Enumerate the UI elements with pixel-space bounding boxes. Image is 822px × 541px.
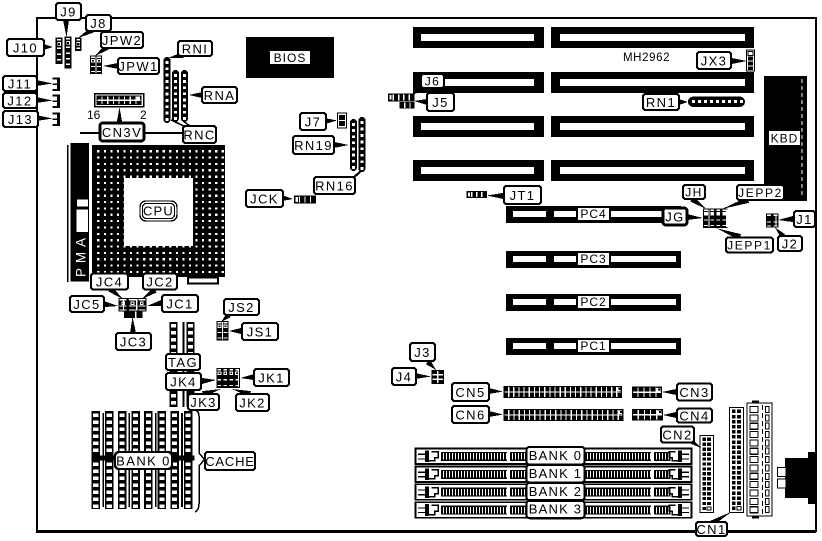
svg-text:J5: J5 xyxy=(432,95,449,110)
svg-text:PC3: PC3 xyxy=(580,252,606,266)
svg-text:M: M xyxy=(74,252,89,263)
svg-text:CN3V: CN3V xyxy=(102,125,142,140)
svg-text:MH2962: MH2962 xyxy=(623,52,670,64)
svg-text:J2: J2 xyxy=(782,237,799,252)
svg-text:JS2: JS2 xyxy=(228,300,255,315)
svg-text:KBD: KBD xyxy=(771,132,799,146)
svg-text:16: 16 xyxy=(87,108,101,122)
svg-text:JC4: JC4 xyxy=(96,275,123,290)
svg-text:JK3: JK3 xyxy=(190,395,217,410)
svg-text:JT1: JT1 xyxy=(510,188,536,203)
svg-text:PC4: PC4 xyxy=(580,207,606,221)
svg-text:JK4: JK4 xyxy=(170,375,197,390)
svg-text:PC2: PC2 xyxy=(580,295,606,309)
svg-text:CN1: CN1 xyxy=(696,522,726,537)
svg-text:J6: J6 xyxy=(425,75,440,89)
svg-text:JX3: JX3 xyxy=(701,54,728,69)
svg-text:PC1: PC1 xyxy=(580,339,606,353)
svg-text:JPW2: JPW2 xyxy=(102,33,142,48)
svg-text:CN5: CN5 xyxy=(455,385,485,400)
svg-text:TAG: TAG xyxy=(168,355,198,370)
svg-text:J9: J9 xyxy=(60,5,77,20)
svg-text:JS1: JS1 xyxy=(247,325,274,340)
svg-text:RN19: RN19 xyxy=(294,138,333,153)
svg-text:CN2: CN2 xyxy=(662,428,692,443)
svg-text:JH: JH xyxy=(685,186,702,200)
svg-text:J10: J10 xyxy=(13,41,38,56)
svg-text:JPW1: JPW1 xyxy=(118,59,158,74)
svg-text:JK1: JK1 xyxy=(258,371,285,386)
svg-text:BANK 0: BANK 0 xyxy=(529,448,582,463)
svg-text:RN1: RN1 xyxy=(646,95,676,110)
svg-text:JC2: JC2 xyxy=(146,275,173,290)
svg-text:A: A xyxy=(74,238,89,247)
svg-text:RNI: RNI xyxy=(182,42,209,57)
svg-text:RNA: RNA xyxy=(204,88,236,103)
svg-text:P: P xyxy=(74,268,89,277)
svg-text:CN3: CN3 xyxy=(679,385,709,400)
svg-text:CPU: CPU xyxy=(143,204,174,219)
svg-text:BANK 3: BANK 3 xyxy=(529,502,582,517)
svg-text:JEPP1: JEPP1 xyxy=(727,239,772,253)
svg-text:BANK 0: BANK 0 xyxy=(116,454,171,469)
svg-text:J4: J4 xyxy=(396,370,413,385)
svg-text:CN4: CN4 xyxy=(679,409,709,424)
svg-text:JC1: JC1 xyxy=(166,297,193,312)
svg-text:J11: J11 xyxy=(8,77,32,92)
svg-text:J13: J13 xyxy=(8,112,33,127)
svg-text:JEPP2: JEPP2 xyxy=(738,186,783,200)
svg-text:JC5: JC5 xyxy=(73,297,100,312)
svg-text:RN16: RN16 xyxy=(315,179,354,194)
svg-text:JC3: JC3 xyxy=(120,335,147,350)
svg-text:CACHE: CACHE xyxy=(205,454,255,469)
svg-text:CN6: CN6 xyxy=(455,408,485,423)
svg-text:RNC: RNC xyxy=(183,128,215,143)
svg-text:J7: J7 xyxy=(305,115,322,130)
svg-text:BANK 2: BANK 2 xyxy=(529,484,582,499)
svg-text:JG: JG xyxy=(665,210,684,225)
svg-text:J1: J1 xyxy=(796,212,813,227)
svg-text:BANK 1: BANK 1 xyxy=(529,466,582,481)
svg-text:J3: J3 xyxy=(414,345,431,360)
svg-text:JK2: JK2 xyxy=(239,396,266,411)
svg-text:BIOS: BIOS xyxy=(274,51,307,65)
svg-text:J12: J12 xyxy=(7,94,32,109)
svg-text:2: 2 xyxy=(140,108,147,122)
svg-text:J8: J8 xyxy=(90,16,107,31)
svg-text:JCK: JCK xyxy=(250,192,279,207)
